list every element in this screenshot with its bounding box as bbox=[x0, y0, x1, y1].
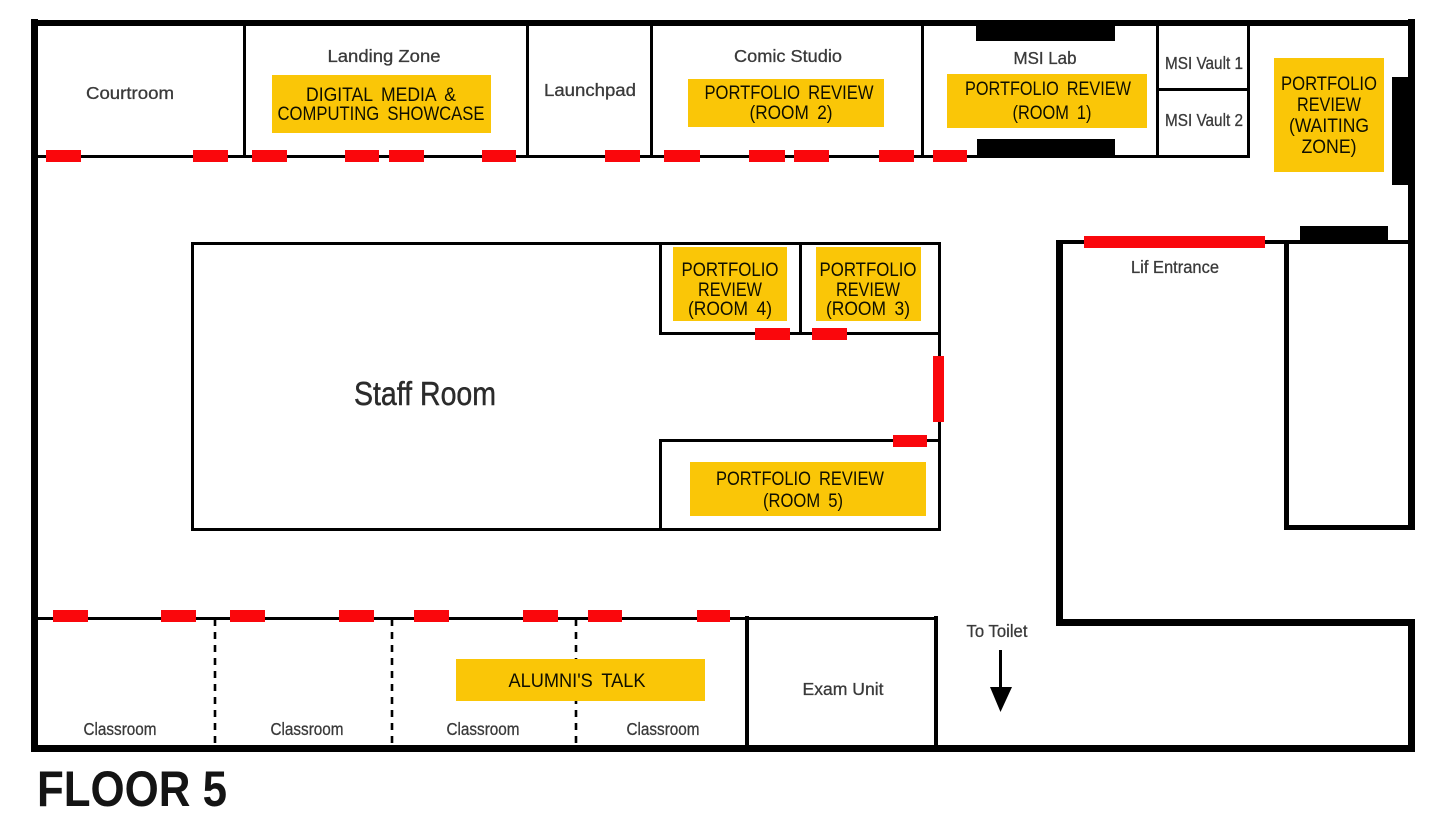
svg-text:FLOOR 5: FLOOR 5 bbox=[37, 761, 227, 817]
svg-text:Launchpad: Launchpad bbox=[544, 80, 636, 100]
svg-text:COMPUTING SHOWCASE: COMPUTING SHOWCASE bbox=[278, 104, 485, 125]
svg-text:MSI Vault 1: MSI Vault 1 bbox=[1165, 53, 1243, 73]
svg-text:PORTFOLIO REVIEW: PORTFOLIO REVIEW bbox=[965, 79, 1131, 100]
svg-text:MSI Lab: MSI Lab bbox=[1014, 48, 1077, 68]
svg-text:PORTFOLIO: PORTFOLIO bbox=[682, 260, 779, 281]
svg-text:REVIEW: REVIEW bbox=[836, 280, 900, 301]
svg-text:DIGITAL MEDIA &: DIGITAL MEDIA & bbox=[306, 85, 456, 106]
svg-text:PORTFOLIO: PORTFOLIO bbox=[1281, 74, 1377, 95]
svg-text:Landing Zone: Landing Zone bbox=[328, 46, 441, 66]
svg-text:(ROOM 5): (ROOM 5) bbox=[763, 491, 843, 512]
svg-text:Classroom: Classroom bbox=[84, 719, 157, 739]
svg-text:REVIEW: REVIEW bbox=[1297, 95, 1361, 116]
svg-text:REVIEW: REVIEW bbox=[698, 280, 762, 301]
svg-text:Courtroom: Courtroom bbox=[86, 83, 174, 103]
svg-text:To Toilet: To Toilet bbox=[967, 621, 1028, 641]
svg-text:(ROOM 4): (ROOM 4) bbox=[688, 299, 772, 320]
svg-text:PORTFOLIO REVIEW: PORTFOLIO REVIEW bbox=[705, 83, 874, 104]
svg-text:Classroom: Classroom bbox=[627, 719, 700, 739]
svg-text:Staff Room: Staff Room bbox=[354, 376, 496, 413]
svg-text:Exam Unit: Exam Unit bbox=[803, 679, 884, 699]
svg-text:Comic Studio: Comic Studio bbox=[734, 46, 842, 66]
svg-text:(WAITING: (WAITING bbox=[1289, 116, 1369, 137]
svg-text:ALUMNI'S TALK: ALUMNI'S TALK bbox=[509, 671, 646, 692]
svg-text:Lif Entrance: Lif Entrance bbox=[1131, 257, 1219, 277]
svg-text:PORTFOLIO: PORTFOLIO bbox=[820, 260, 917, 281]
svg-text:Classroom: Classroom bbox=[271, 719, 344, 739]
svg-text:PORTFOLIO REVIEW: PORTFOLIO REVIEW bbox=[716, 469, 884, 490]
svg-text:(ROOM 3): (ROOM 3) bbox=[826, 299, 910, 320]
svg-text:ZONE): ZONE) bbox=[1302, 137, 1357, 158]
svg-text:Classroom: Classroom bbox=[447, 719, 520, 739]
svg-text:(ROOM 2): (ROOM 2) bbox=[750, 103, 833, 124]
svg-text:(ROOM 1): (ROOM 1) bbox=[1013, 103, 1092, 124]
svg-text:MSI Vault 2: MSI Vault 2 bbox=[1165, 110, 1243, 130]
